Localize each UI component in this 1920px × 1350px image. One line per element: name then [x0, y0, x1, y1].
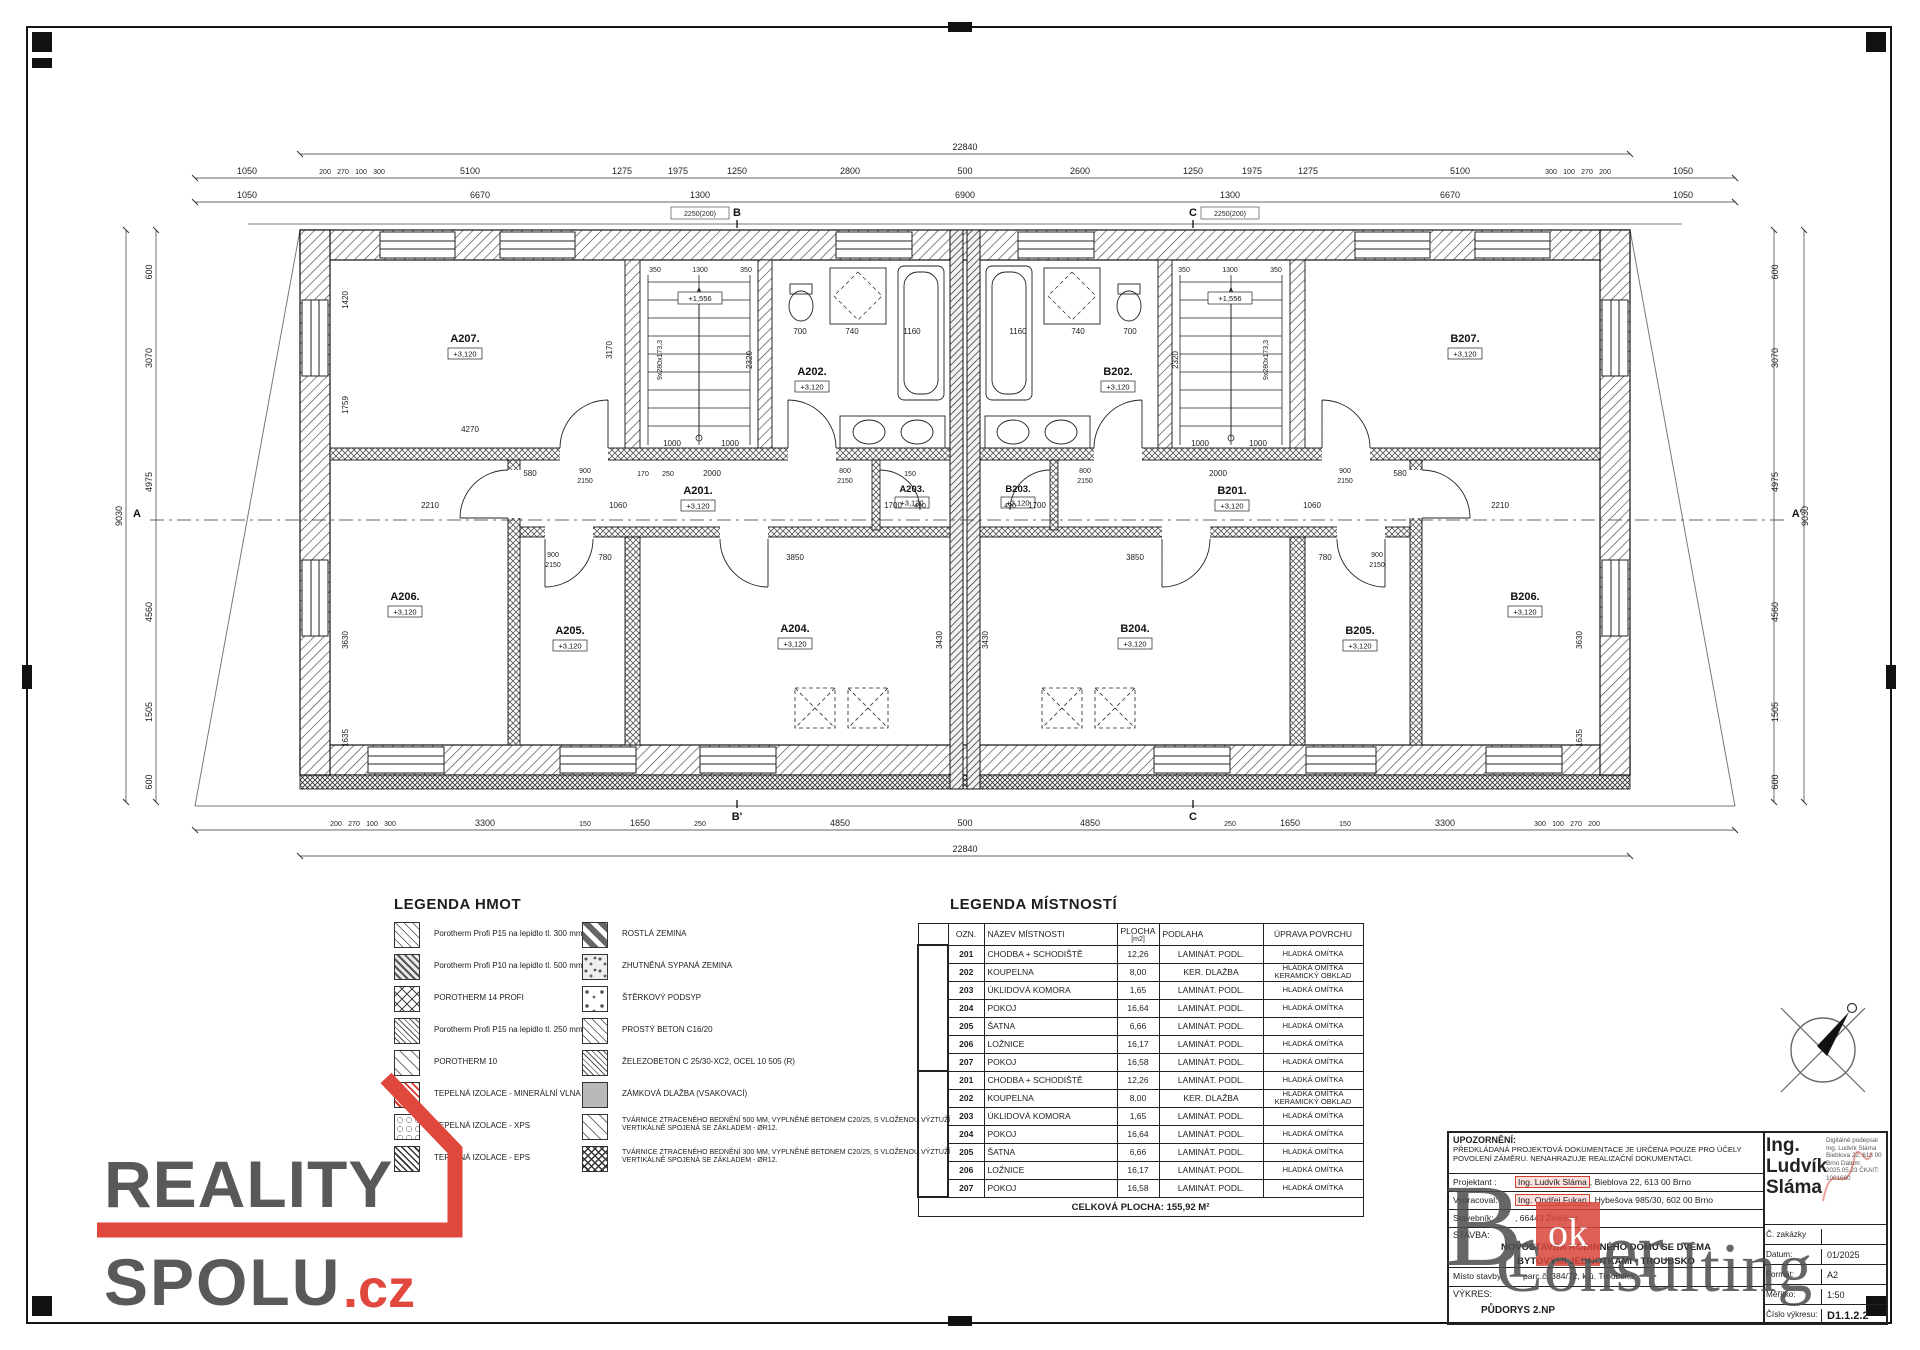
svg-text:300: 300 [1545, 169, 1557, 176]
svg-text:250: 250 [662, 471, 674, 478]
swatch-rostla-zemina [582, 922, 608, 948]
roof-outline [195, 224, 1735, 806]
legend-label: ŠTĚRKOVÝ PODSYP [622, 993, 701, 1002]
svg-text:150: 150 [1339, 821, 1351, 828]
svg-text:200: 200 [1588, 821, 1600, 828]
format-row: Formát:A2 [1763, 1265, 1886, 1285]
bathroom-fixtures [789, 266, 1141, 728]
svg-text:580: 580 [523, 469, 537, 478]
misto-value: parc.č. 384/72, k.ú. Troubsko [1523, 1271, 1634, 1281]
svg-text:700: 700 [1123, 327, 1137, 336]
svg-text:1000: 1000 [663, 439, 681, 448]
upozorneni: UPOZORNĚNÍ: PŘEDKLÁDANÁ PROJEKTOVÁ DOKUM… [1449, 1133, 1763, 1174]
svg-text:4560: 4560 [1770, 602, 1780, 622]
realityspolu-logo: REALITY SPOLU .cz [88, 1058, 518, 1338]
svg-text:1700: 1700 [1028, 501, 1046, 510]
upozorneni-title: UPOZORNĚNÍ: [1453, 1135, 1516, 1145]
svg-text:270: 270 [348, 821, 360, 828]
svg-text:250: 250 [694, 821, 706, 828]
svg-text:200: 200 [330, 821, 342, 828]
svg-text:2320: 2320 [745, 351, 754, 369]
svg-text:300: 300 [373, 169, 385, 176]
stavebnik-label: Stavebník: [1453, 1213, 1515, 1223]
svg-text:100: 100 [366, 821, 378, 828]
svg-text:600: 600 [144, 264, 154, 279]
north-arrow-icon [1781, 1004, 1865, 1093]
svg-text:+3,120: +3,120 [800, 383, 823, 392]
svg-text:+3,120: +3,120 [558, 642, 581, 651]
svg-text:A: A [133, 508, 141, 520]
svg-text:600: 600 [144, 774, 154, 789]
signature-cell: Ing. Ludvík Sláma Digitálně podepsal Ing… [1763, 1133, 1886, 1225]
svg-text:270: 270 [1581, 169, 1593, 176]
svg-text:3300: 3300 [475, 818, 495, 828]
row-label: Číslo výkresu: [1766, 1310, 1817, 1319]
svg-text:1250: 1250 [727, 166, 747, 176]
legend-label: TVÁRNICE ZTRACENÉHO BEDNĚNÍ 500 MM, VYPL… [622, 1117, 952, 1133]
upozorneni-line: PŘEDKLÁDANÁ PROJEKTOVÁ DOKUMENTACE JE UR… [1453, 1145, 1759, 1154]
svg-text:1160: 1160 [1009, 327, 1027, 336]
misto-label: Místo stavby: [1453, 1271, 1523, 1281]
svg-text:600: 600 [1770, 774, 1780, 789]
svg-text:1505: 1505 [1770, 702, 1780, 722]
swatch-sypana-zemina [582, 954, 608, 980]
signature-scribble [1815, 1141, 1875, 1211]
svg-text:1300: 1300 [1220, 190, 1240, 200]
svg-text:A205.: A205. [555, 625, 584, 637]
svg-text:+3,120: +3,120 [453, 350, 476, 359]
stavba-label: STAVBA: [1453, 1230, 1490, 1240]
svg-text:1050: 1050 [237, 190, 257, 200]
svg-text:B: B [733, 207, 741, 219]
svg-text:250: 250 [1224, 821, 1236, 828]
svg-text:2210: 2210 [1491, 501, 1509, 510]
svg-text:B205.: B205. [1345, 625, 1374, 637]
stavba-line1: NOVOSTAVBA RODINNÉHO DOMU SE DVĚMA [1453, 1242, 1759, 1254]
svg-text:1650: 1650 [630, 818, 650, 828]
svg-text:2150: 2150 [837, 478, 853, 485]
svg-text:+3,120: +3,120 [1106, 383, 1129, 392]
svg-text:200: 200 [319, 169, 331, 176]
svg-text:4850: 4850 [1080, 818, 1100, 828]
stavebnik-row: Stavebník:, 66443 Želešice [1449, 1210, 1763, 1228]
row-label: Č. zakázky [1766, 1230, 1806, 1239]
svg-text:5100: 5100 [1450, 166, 1470, 176]
svg-text:2150: 2150 [1077, 478, 1093, 485]
svg-text:300: 300 [384, 821, 396, 828]
svg-text:100: 100 [1563, 169, 1575, 176]
svg-text:150: 150 [904, 471, 916, 478]
row-value: D1.1.2.2 [1821, 1309, 1886, 1325]
svg-text:500: 500 [957, 818, 972, 828]
svg-text:350: 350 [740, 267, 752, 274]
svg-text:1160: 1160 [903, 327, 921, 336]
dimension-labels-top: 22840 1050 200 270 100 300 5100 1275 197… [237, 142, 1693, 219]
svg-text:900: 900 [547, 552, 559, 559]
svg-text:6670: 6670 [470, 190, 490, 200]
col-nazev: NÁZEV MÍSTNOSTI [984, 924, 1117, 946]
svg-text:1275: 1275 [1298, 166, 1318, 176]
svg-text:3630: 3630 [1575, 631, 1584, 649]
svg-text:A': A' [1792, 508, 1803, 520]
legend-label: POROTHERM 14 PROFI [434, 993, 524, 1002]
svg-text:B203.: B203. [1005, 484, 1030, 495]
svg-text:9030: 9030 [114, 506, 124, 526]
swatch-tvarnice-500 [582, 1114, 608, 1140]
dim: 22840 [952, 142, 977, 152]
svg-text:3170: 3170 [605, 341, 614, 359]
cislo-vykresu-row: Číslo výkresu:D1.1.2.2 [1763, 1305, 1886, 1325]
svg-text:22840: 22840 [952, 844, 977, 854]
svg-text:1300: 1300 [692, 267, 708, 274]
row-value [1821, 1229, 1886, 1245]
swatch-tvarnice-300 [582, 1146, 608, 1172]
svg-text:+3,120: +3,120 [1513, 608, 1536, 617]
legend-label: ROSTLÁ ZEMINA [622, 929, 686, 938]
svg-text:3850: 3850 [1126, 553, 1144, 562]
projektant-address: , Bieblova 22, 613 00 Brno [1590, 1177, 1691, 1187]
svg-text:A202.: A202. [797, 366, 826, 378]
svg-text:A207.: A207. [450, 333, 479, 345]
vykres-label: VÝKRES: [1453, 1289, 1492, 1299]
svg-text:1275: 1275 [612, 166, 632, 176]
svg-text:4975: 4975 [1770, 472, 1780, 492]
svg-text:200: 200 [1599, 169, 1611, 176]
vypracoval-name: Ing. Ondřej Fukan [1515, 1194, 1590, 1206]
svg-text:800: 800 [1079, 468, 1091, 475]
zakazka-row: Č. zakázky [1763, 1225, 1886, 1245]
swatch-porotherm-p15-250 [394, 1018, 420, 1044]
stavebnik-value: , 66443 Želešice [1515, 1213, 1578, 1223]
svg-text:5100: 5100 [460, 166, 480, 176]
svg-text:350: 350 [1270, 267, 1282, 274]
swatch-zelezobeton [582, 1050, 608, 1076]
svg-text:580: 580 [1393, 469, 1407, 478]
vypracoval-row: Vypracoval:Ing. Ondřej Fukan, Hybešova 9… [1449, 1192, 1763, 1210]
svg-text:1000: 1000 [1249, 439, 1267, 448]
svg-text:C: C [1189, 811, 1197, 823]
legend-label: TVÁRNICE ZTRACENÉHO BEDNĚNÍ 300 MM, VYPL… [622, 1149, 952, 1165]
col-uprava: ÚPRAVA POVRCHU [1263, 924, 1363, 946]
svg-text:1635: 1635 [1575, 729, 1584, 747]
svg-text:4560: 4560 [144, 602, 154, 622]
svg-text:2800: 2800 [840, 166, 860, 176]
svg-text:A206.: A206. [390, 591, 419, 603]
room-labels: A207.+3,120 A202.+3,120 A201.+3,120 A203… [388, 333, 1542, 651]
upozorneni-line: POVOLENÍ ZÁMĚRU. NENAHRAZUJE REALIZAČNÍ … [1453, 1154, 1759, 1163]
svg-text:900: 900 [1371, 552, 1383, 559]
meritko-row: Měřítko:1:50 [1763, 1285, 1886, 1305]
legend-label: ŽELEZOBETON C 25/30-XC2, OCEL 10 505 (R) [622, 1057, 795, 1066]
svg-text:1975: 1975 [668, 166, 688, 176]
svg-text:170: 170 [637, 471, 649, 478]
svg-text:+1,556: +1,556 [1218, 294, 1241, 303]
svg-text:B207.: B207. [1450, 333, 1479, 345]
exterior-walls [300, 230, 1630, 789]
col-podlaha: PODLAHA [1159, 924, 1263, 946]
row-value: 01/2025 [1821, 1249, 1886, 1265]
svg-text:A203.: A203. [899, 484, 924, 495]
svg-text:C: C [1189, 207, 1197, 219]
rooms-table: OZN. NÁZEV MÍSTNOSTI PLOCHA[m2] PODLAHA … [917, 923, 1364, 1217]
col-ozn: OZN. [948, 924, 984, 946]
svg-text:1635: 1635 [341, 729, 350, 747]
total-area: CELKOVÁ PLOCHA: 155,92 M² [918, 1197, 1363, 1217]
svg-text:780: 780 [598, 553, 612, 562]
realityspolu-tld: .cz [343, 1258, 415, 1320]
svg-text:+3,120: +3,120 [1348, 642, 1371, 651]
svg-text:3430: 3430 [981, 631, 990, 649]
svg-text:+3,120: +3,120 [1123, 640, 1146, 649]
legend-rooms-title: LEGENDA MÍSTNOSTÍ [950, 896, 1117, 913]
svg-text:2150: 2150 [545, 562, 561, 569]
svg-text:1250: 1250 [1183, 166, 1203, 176]
svg-text:1505: 1505 [144, 702, 154, 722]
svg-text:1050: 1050 [1673, 166, 1693, 176]
svg-text:150: 150 [579, 821, 591, 828]
misto-row: Místo stavby:parc.č. 384/72, k.ú. Troubs… [1449, 1268, 1763, 1287]
drawing-sheet: 22840 1050 200 270 100 300 5100 1275 197… [0, 0, 1920, 1350]
windows [302, 232, 1628, 773]
row-label: Datum: [1766, 1250, 1792, 1259]
svg-text:500: 500 [957, 166, 972, 176]
legend-label: Porotherm Profi P15 na lepidlo tl. 300 m… [434, 929, 583, 938]
legend-label: ZÁMKOVÁ DLAŽBA (VSAKOVACÍ) [622, 1089, 747, 1098]
svg-text:2210: 2210 [421, 501, 439, 510]
svg-text:270: 270 [337, 169, 349, 176]
svg-text:3430: 3430 [935, 631, 944, 649]
svg-text:1975: 1975 [1242, 166, 1262, 176]
swatch-zamkova-dlazba [582, 1082, 608, 1108]
svg-text:2150: 2150 [1369, 562, 1385, 569]
svg-text:6900: 6900 [955, 190, 975, 200]
svg-text:1050: 1050 [237, 166, 257, 176]
stavba-row: STAVBA: NOVOSTAVBA RODINNÉHO DOMU SE DVĚ… [1449, 1228, 1763, 1268]
svg-text:740: 740 [1071, 327, 1085, 336]
svg-text:1060: 1060 [609, 501, 627, 510]
svg-text:1420: 1420 [341, 291, 350, 309]
svg-text:740: 740 [845, 327, 859, 336]
svg-text:+3,120: +3,120 [783, 640, 806, 649]
svg-text:100: 100 [355, 169, 367, 176]
svg-text:A204.: A204. [780, 623, 809, 635]
vykres-row: VÝKRES: PŮDORYS 2.NP [1449, 1287, 1763, 1323]
svg-text:700: 700 [793, 327, 807, 336]
svg-text:1060: 1060 [1303, 501, 1321, 510]
svg-text:350: 350 [649, 267, 661, 274]
svg-text:9x280x173,3: 9x280x173,3 [657, 340, 664, 380]
svg-text:+3,120: +3,120 [1220, 502, 1243, 511]
svg-text:2250(200): 2250(200) [1214, 211, 1246, 218]
svg-text:+3,120: +3,120 [686, 502, 709, 511]
swatch-prosty-beton [582, 1018, 608, 1044]
projektant-label: Projektant : [1453, 1177, 1515, 1187]
svg-text:6670: 6670 [1440, 190, 1460, 200]
row-value: 1:50 [1821, 1289, 1886, 1305]
svg-text:B202.: B202. [1103, 366, 1132, 378]
title-block: UPOZORNĚNÍ: PŘEDKLÁDANÁ PROJEKTOVÁ DOKUM… [1447, 1131, 1888, 1325]
svg-text:+3,120: +3,120 [1453, 350, 1476, 359]
svg-text:+3,120: +3,120 [1006, 499, 1029, 508]
svg-text:+3,120: +3,120 [393, 608, 416, 617]
svg-text:100: 100 [1552, 821, 1564, 828]
svg-text:2320: 2320 [1171, 351, 1180, 369]
vypracoval-address: , Hybešova 985/30, 602 00 Brno [1590, 1195, 1713, 1205]
svg-text:2600: 2600 [1070, 166, 1090, 176]
svg-text:1000: 1000 [721, 439, 739, 448]
legend-label: PROSTÝ BETON C16/20 [622, 1025, 713, 1034]
svg-text:4270: 4270 [461, 425, 479, 434]
vypracoval-label: Vypracoval: [1453, 1195, 1515, 1205]
svg-text:270: 270 [1570, 821, 1582, 828]
svg-text:9x280x173,3: 9x280x173,3 [1263, 340, 1270, 380]
legend-label: ZHUTNĚNÁ SYPANÁ ZEMINA [622, 961, 732, 970]
svg-text:B204.: B204. [1120, 623, 1149, 635]
svg-text:4975: 4975 [144, 472, 154, 492]
row-value: A2 [1821, 1269, 1886, 1285]
svg-text:780: 780 [1318, 553, 1332, 562]
vykres-value: PŮDORYS 2.NP [1481, 1305, 1759, 1316]
swatch-porotherm-14 [394, 986, 420, 1012]
svg-text:900: 900 [579, 468, 591, 475]
svg-text:2150: 2150 [1337, 478, 1353, 485]
svg-text:1300: 1300 [690, 190, 710, 200]
legend-label: Porotherm Profi P10 na lepidlo tl. 500 m… [434, 961, 583, 970]
svg-text:300: 300 [1534, 821, 1546, 828]
svg-text:3300: 3300 [1435, 818, 1455, 828]
legend-label: Porotherm Profi P15 na lepidlo tl. 250 m… [434, 1025, 583, 1034]
svg-text:+3,120: +3,120 [900, 499, 923, 508]
svg-text:B206.: B206. [1510, 591, 1539, 603]
svg-text:1000: 1000 [1191, 439, 1209, 448]
swatch-sterk [582, 986, 608, 1012]
svg-text:2000: 2000 [703, 469, 721, 478]
row-label: Měřítko: [1766, 1290, 1796, 1299]
legend-materials-title: LEGENDA HMOT [394, 896, 521, 913]
projektant-row: Projektant :Ing. Ludvík Sláma, Bieblova … [1449, 1174, 1763, 1192]
svg-text:3630: 3630 [341, 631, 350, 649]
dimension-labels-bottom: 200 270 100 300 3300 150 1650 250 4850 5… [330, 818, 1600, 854]
svg-text:A201.: A201. [683, 485, 712, 497]
swatch-porotherm-p10-500 [394, 954, 420, 980]
datum-row: Datum:01/2025 [1763, 1245, 1886, 1265]
swatch-porotherm-p15-300 [394, 922, 420, 948]
svg-text:1759: 1759 [341, 396, 350, 414]
svg-text:900: 900 [1339, 468, 1351, 475]
svg-text:1050: 1050 [1673, 190, 1693, 200]
col-plocha: PLOCHA [1121, 926, 1156, 936]
svg-text:B': B' [732, 811, 743, 823]
row-label: Formát: [1766, 1270, 1794, 1279]
svg-text:350: 350 [1178, 267, 1190, 274]
svg-text:2000: 2000 [1209, 469, 1227, 478]
svg-text:2150: 2150 [577, 478, 593, 485]
svg-text:3070: 3070 [144, 348, 154, 368]
svg-text:B201.: B201. [1217, 485, 1246, 497]
svg-text:+1,556: +1,556 [688, 294, 711, 303]
realityspolu-word1: REALITY [104, 1146, 393, 1222]
realityspolu-word2: SPOLU [104, 1244, 341, 1320]
svg-text:800: 800 [839, 468, 851, 475]
stavba-line2: BYTOVÝMI JEDNOTKAMI - TROUBSKO [1453, 1256, 1759, 1268]
svg-text:2250(200): 2250(200) [684, 211, 716, 218]
col-plocha-unit: [m2] [1121, 936, 1156, 943]
svg-text:1300: 1300 [1222, 267, 1238, 274]
svg-text:3850: 3850 [786, 553, 804, 562]
svg-text:600: 600 [1770, 264, 1780, 279]
svg-text:3070: 3070 [1770, 348, 1780, 368]
svg-text:4850: 4850 [830, 818, 850, 828]
projektant-name: Ing. Ludvík Sláma [1515, 1176, 1590, 1188]
svg-text:1650: 1650 [1280, 818, 1300, 828]
